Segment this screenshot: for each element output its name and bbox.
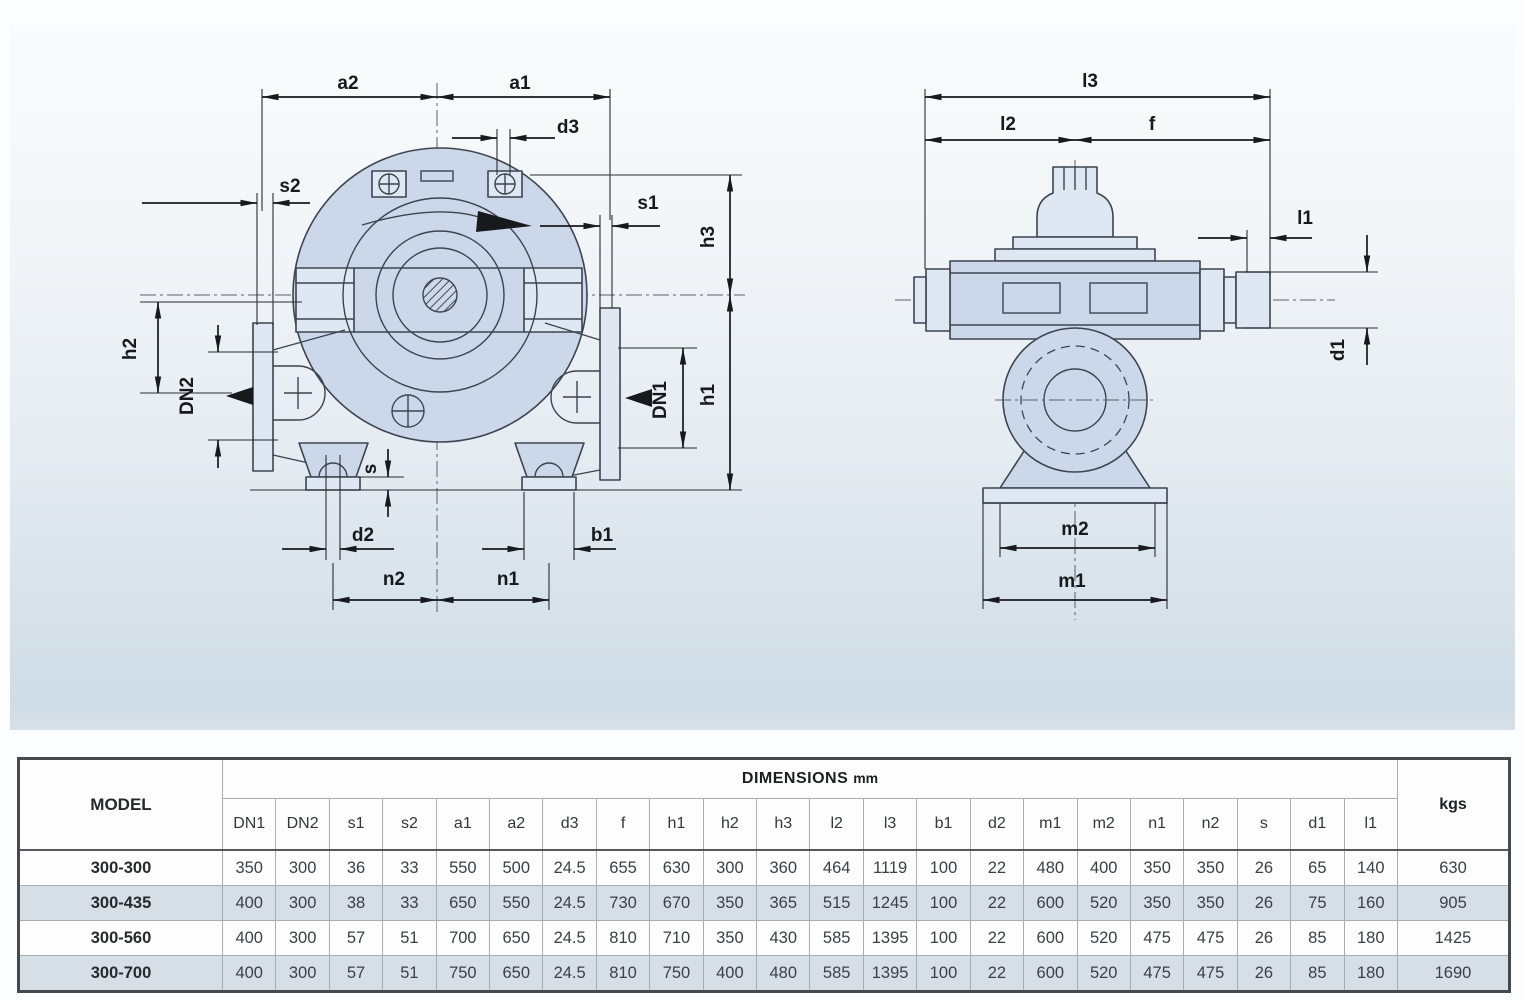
weight-cell: 1690 bbox=[1397, 956, 1509, 992]
dim-label-m1: m1 bbox=[1058, 571, 1086, 592]
dim-label-dn2: DN2 bbox=[177, 377, 198, 415]
weight-cell: 1425 bbox=[1397, 921, 1509, 956]
value-cell-h2: 300 bbox=[703, 850, 756, 886]
value-cell-s1: 36 bbox=[329, 850, 382, 886]
model-cell: 300-700 bbox=[19, 956, 223, 992]
value-cell-a2: 550 bbox=[490, 886, 543, 921]
value-cell-f: 810 bbox=[596, 921, 649, 956]
dimensions-unit-label: mm bbox=[853, 770, 878, 786]
column-header-s: s bbox=[1237, 799, 1290, 851]
dimensions-table: MODELDIMENSIONS mmkgsDN1DN2s1s2a1a2d3fh1… bbox=[17, 757, 1511, 993]
dim-label-s: s bbox=[360, 464, 381, 475]
column-header-DN1: DN1 bbox=[223, 799, 276, 851]
value-cell-l3: 1245 bbox=[863, 886, 916, 921]
column-header-s1: s1 bbox=[329, 799, 382, 851]
value-cell-a1: 650 bbox=[436, 886, 489, 921]
value-cell-a2: 650 bbox=[490, 921, 543, 956]
column-header-l1: l1 bbox=[1344, 799, 1397, 851]
column-header-m1: m1 bbox=[1024, 799, 1077, 851]
column-header-l2: l2 bbox=[810, 799, 863, 851]
flow-arrow-dn1 bbox=[625, 389, 652, 407]
value-cell-l1: 140 bbox=[1344, 850, 1397, 886]
column-header-l3: l3 bbox=[863, 799, 916, 851]
value-cell-b1: 100 bbox=[917, 886, 970, 921]
column-header-b1: b1 bbox=[917, 799, 970, 851]
dim-label-dn1: DN1 bbox=[650, 381, 671, 419]
column-header-a1: a1 bbox=[436, 799, 489, 851]
value-cell-m2: 520 bbox=[1077, 921, 1130, 956]
value-cell-d2: 22 bbox=[970, 886, 1023, 921]
column-header-d3: d3 bbox=[543, 799, 596, 851]
dim-label-m2: m2 bbox=[1061, 519, 1088, 540]
column-header-h3: h3 bbox=[757, 799, 810, 851]
value-cell-s1: 38 bbox=[329, 886, 382, 921]
value-cell-n2: 475 bbox=[1184, 921, 1237, 956]
dimensions-table-wrap: MODELDIMENSIONS mmkgsDN1DN2s1s2a1a2d3fh1… bbox=[17, 757, 1511, 993]
value-cell-l3: 1395 bbox=[863, 956, 916, 992]
column-header-h1: h1 bbox=[650, 799, 703, 851]
value-cell-DN2: 300 bbox=[276, 921, 329, 956]
value-cell-d3: 24.5 bbox=[543, 956, 596, 992]
value-cell-m2: 520 bbox=[1077, 956, 1130, 992]
dim-label-s2: s2 bbox=[279, 176, 300, 197]
model-cell: 300-300 bbox=[19, 850, 223, 886]
value-cell-h2: 350 bbox=[703, 921, 756, 956]
value-cell-DN1: 400 bbox=[223, 921, 276, 956]
value-cell-h3: 360 bbox=[757, 850, 810, 886]
value-cell-h2: 350 bbox=[703, 886, 756, 921]
value-cell-h3: 480 bbox=[757, 956, 810, 992]
side-view: l3 l2 f l1 d1 m2 m1 bbox=[895, 71, 1378, 620]
dim-label-d2: d2 bbox=[352, 525, 374, 546]
dim-label-d1: d1 bbox=[1328, 338, 1349, 361]
value-cell-s: 26 bbox=[1237, 850, 1290, 886]
front-view: a2 a1 d3 s2 s1 h3 h1 h2 bbox=[120, 73, 745, 615]
value-cell-f: 810 bbox=[596, 956, 649, 992]
value-cell-s2: 51 bbox=[383, 921, 436, 956]
value-cell-h3: 365 bbox=[757, 886, 810, 921]
dim-label-n1: n1 bbox=[497, 569, 520, 590]
value-cell-d3: 24.5 bbox=[543, 850, 596, 886]
dimensions-header: DIMENSIONS mm bbox=[223, 759, 1398, 799]
value-cell-n2: 350 bbox=[1184, 886, 1237, 921]
value-cell-n1: 350 bbox=[1130, 850, 1183, 886]
column-header-d1: d1 bbox=[1291, 799, 1344, 851]
column-header-DN2: DN2 bbox=[276, 799, 329, 851]
column-header-m2: m2 bbox=[1077, 799, 1130, 851]
dim-label-h2: h2 bbox=[120, 338, 141, 360]
value-cell-h3: 430 bbox=[757, 921, 810, 956]
value-cell-DN1: 400 bbox=[223, 886, 276, 921]
value-cell-l1: 160 bbox=[1344, 886, 1397, 921]
value-cell-d3: 24.5 bbox=[543, 886, 596, 921]
value-cell-d1: 65 bbox=[1291, 850, 1344, 886]
dim-label-l1: l1 bbox=[1297, 208, 1313, 229]
table-row-300-560: 300-560400300575170065024.58107103504305… bbox=[19, 921, 1510, 956]
column-header-d2: d2 bbox=[970, 799, 1023, 851]
dim-label-a1: a1 bbox=[509, 73, 531, 94]
value-cell-n1: 475 bbox=[1130, 921, 1183, 956]
value-cell-DN1: 400 bbox=[223, 956, 276, 992]
value-cell-a1: 550 bbox=[436, 850, 489, 886]
weight-column-header: kgs bbox=[1397, 759, 1509, 851]
dim-label-d3: d3 bbox=[557, 117, 579, 138]
table-head: MODELDIMENSIONS mmkgsDN1DN2s1s2a1a2d3fh1… bbox=[19, 759, 1510, 851]
column-header-a2: a2 bbox=[490, 799, 543, 851]
value-cell-f: 730 bbox=[596, 886, 649, 921]
dimensions-header-label: DIMENSIONS bbox=[742, 770, 848, 787]
value-cell-s2: 51 bbox=[383, 956, 436, 992]
value-cell-d1: 85 bbox=[1291, 956, 1344, 992]
value-cell-s: 26 bbox=[1237, 956, 1290, 992]
page: { "drawing": { "front_labels": { "a2":"a… bbox=[0, 0, 1525, 1000]
value-cell-f: 655 bbox=[596, 850, 649, 886]
column-header-s2: s2 bbox=[383, 799, 436, 851]
value-cell-l3: 1119 bbox=[863, 850, 916, 886]
column-header-n1: n1 bbox=[1130, 799, 1183, 851]
value-cell-b1: 100 bbox=[917, 956, 970, 992]
model-cell: 300-435 bbox=[19, 886, 223, 921]
value-cell-d1: 85 bbox=[1291, 921, 1344, 956]
value-cell-a2: 650 bbox=[490, 956, 543, 992]
column-header-f: f bbox=[596, 799, 649, 851]
table-row-300-700: 300-700400300575175065024.58107504004805… bbox=[19, 956, 1510, 992]
value-cell-m1: 600 bbox=[1024, 956, 1077, 992]
value-cell-l1: 180 bbox=[1344, 921, 1397, 956]
value-cell-l1: 180 bbox=[1344, 956, 1397, 992]
value-cell-d2: 22 bbox=[970, 850, 1023, 886]
value-cell-n2: 475 bbox=[1184, 956, 1237, 992]
flow-arrow-dn2 bbox=[226, 387, 253, 405]
table-row-300-435: 300-435400300383365055024.57306703503655… bbox=[19, 886, 1510, 921]
value-cell-l3: 1395 bbox=[863, 921, 916, 956]
value-cell-s: 26 bbox=[1237, 886, 1290, 921]
dim-label-h1: h1 bbox=[698, 383, 719, 406]
value-cell-n2: 350 bbox=[1184, 850, 1237, 886]
value-cell-DN2: 300 bbox=[276, 956, 329, 992]
value-cell-a2: 500 bbox=[490, 850, 543, 886]
value-cell-h1: 670 bbox=[650, 886, 703, 921]
dim-label-l3: l3 bbox=[1082, 71, 1098, 92]
value-cell-l2: 585 bbox=[810, 956, 863, 992]
value-cell-d2: 22 bbox=[970, 921, 1023, 956]
value-cell-m2: 400 bbox=[1077, 850, 1130, 886]
dim-label-n2: n2 bbox=[383, 569, 405, 590]
value-cell-h1: 630 bbox=[650, 850, 703, 886]
value-cell-s: 26 bbox=[1237, 921, 1290, 956]
value-cell-b1: 100 bbox=[917, 850, 970, 886]
value-cell-n1: 475 bbox=[1130, 956, 1183, 992]
weight-cell: 630 bbox=[1397, 850, 1509, 886]
column-header-n2: n2 bbox=[1184, 799, 1237, 851]
value-cell-a1: 750 bbox=[436, 956, 489, 992]
value-cell-d3: 24.5 bbox=[543, 921, 596, 956]
model-column-header: MODEL bbox=[19, 759, 223, 851]
dim-label-f: f bbox=[1149, 114, 1156, 135]
value-cell-n1: 350 bbox=[1130, 886, 1183, 921]
value-cell-s2: 33 bbox=[383, 886, 436, 921]
value-cell-m1: 480 bbox=[1024, 850, 1077, 886]
pump-technical-drawing: a2 a1 d3 s2 s1 h3 h1 h2 bbox=[0, 25, 1525, 731]
value-cell-s1: 57 bbox=[329, 956, 382, 992]
table-body: 300-300350300363355050024.56556303003604… bbox=[19, 850, 1510, 992]
model-cell: 300-560 bbox=[19, 921, 223, 956]
value-cell-DN2: 300 bbox=[276, 886, 329, 921]
value-cell-d1: 75 bbox=[1291, 886, 1344, 921]
value-cell-b1: 100 bbox=[917, 921, 970, 956]
value-cell-h2: 400 bbox=[703, 956, 756, 992]
value-cell-m1: 600 bbox=[1024, 921, 1077, 956]
value-cell-l2: 464 bbox=[810, 850, 863, 886]
value-cell-s2: 33 bbox=[383, 850, 436, 886]
dim-label-a2: a2 bbox=[337, 73, 358, 94]
table-row-300-300: 300-300350300363355050024.56556303003604… bbox=[19, 850, 1510, 886]
dim-label-b1: b1 bbox=[591, 525, 614, 546]
value-cell-l2: 585 bbox=[810, 921, 863, 956]
dim-label-s1: s1 bbox=[637, 193, 659, 214]
weight-cell: 905 bbox=[1397, 886, 1509, 921]
value-cell-h1: 750 bbox=[650, 956, 703, 992]
value-cell-m2: 520 bbox=[1077, 886, 1130, 921]
value-cell-a1: 700 bbox=[436, 921, 489, 956]
value-cell-h1: 710 bbox=[650, 921, 703, 956]
dim-label-l2: l2 bbox=[1000, 114, 1016, 135]
value-cell-DN1: 350 bbox=[223, 850, 276, 886]
value-cell-s1: 57 bbox=[329, 921, 382, 956]
value-cell-d2: 22 bbox=[970, 956, 1023, 992]
value-cell-m1: 600 bbox=[1024, 886, 1077, 921]
value-cell-l2: 515 bbox=[810, 886, 863, 921]
dim-label-h3: h3 bbox=[698, 226, 719, 248]
column-header-h2: h2 bbox=[703, 799, 756, 851]
value-cell-DN2: 300 bbox=[276, 850, 329, 886]
